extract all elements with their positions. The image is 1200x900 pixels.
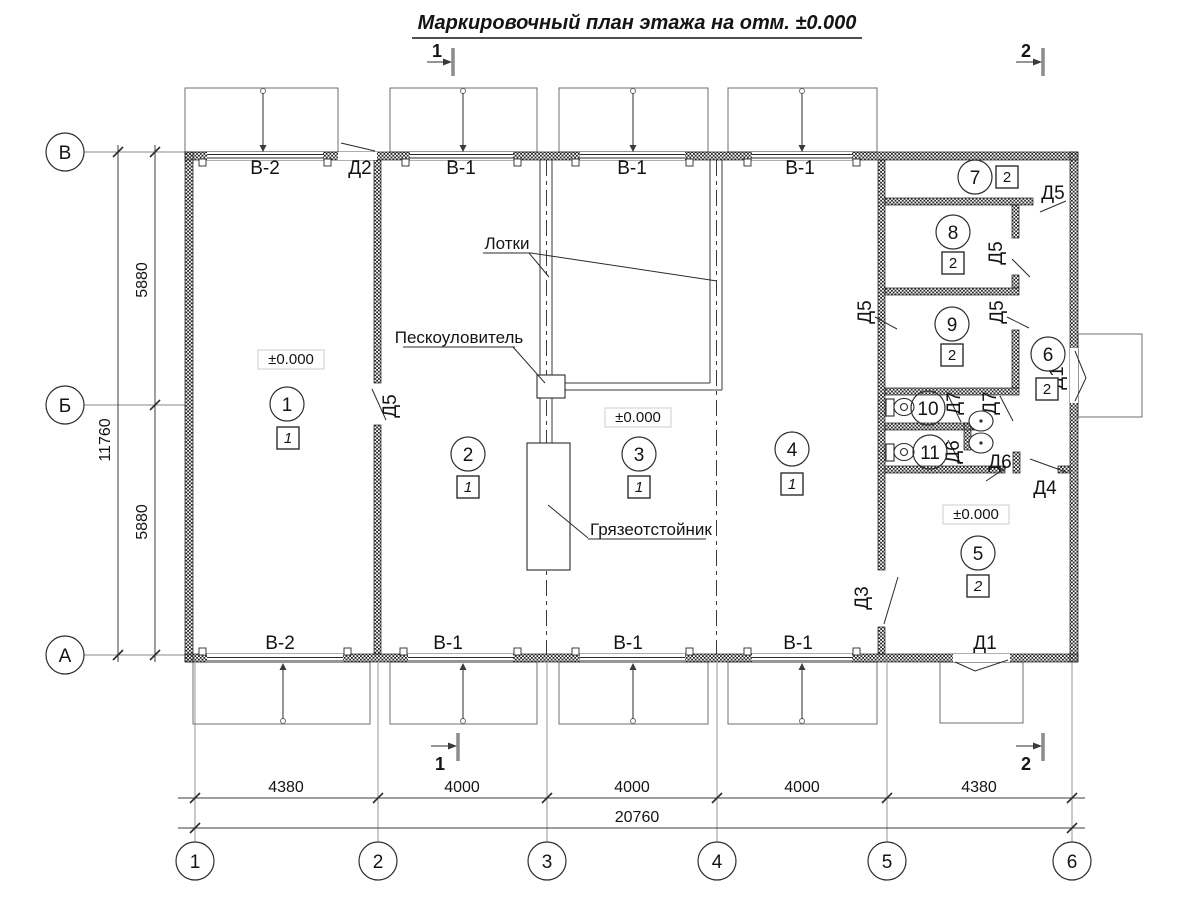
door-label-d7-b: Д7	[980, 391, 1001, 414]
elevation-room3: ±0.000	[615, 409, 661, 426]
section-1-label-top: 1	[432, 41, 442, 61]
plan-canvas: Маркировочный план этажа на отм. ±0.000	[0, 0, 1200, 900]
room-number: 6	[1043, 345, 1054, 366]
toilet-room10	[886, 399, 914, 417]
section-2-label-bottom: 2	[1021, 754, 1031, 774]
floor-plan-drawing: Маркировочный план этажа на отм. ±0.000	[0, 0, 1200, 900]
room-mark: 1	[788, 476, 796, 493]
axis-col-1: 1	[190, 852, 201, 873]
axis-col-3: 3	[542, 852, 553, 873]
door-label-d5-room9-left: Д5	[855, 300, 876, 323]
axis-col-6: 6	[1067, 852, 1078, 873]
room-number: 5	[973, 544, 984, 565]
door-label-d6-b: Д6	[988, 452, 1011, 473]
elevation-room1: ±0.000	[268, 351, 314, 368]
washbasin-lower	[969, 433, 993, 453]
axis-row-v: В	[59, 143, 72, 164]
window-label-v1-bottom-2: В-1	[613, 633, 643, 654]
room-mark: 2	[1043, 381, 1051, 398]
door-label-d7-a: Д7	[944, 391, 965, 414]
door-label-d2: Д2	[348, 158, 371, 179]
window-label-v1-top-1: В-1	[446, 158, 476, 179]
section-2-label-top: 2	[1021, 41, 1031, 61]
dim-left-upper: 5880	[134, 262, 151, 298]
axis-col-2: 2	[373, 852, 384, 873]
room-number: 9	[947, 315, 958, 336]
window-label-v1-top-2: В-1	[617, 158, 647, 179]
room-number: 1	[282, 395, 293, 416]
window-label-v2-bottom: В-2	[265, 633, 295, 654]
room-number: 2	[463, 445, 474, 466]
door-label-d1-bottom: Д1	[973, 633, 996, 654]
door-label-d5-corridor: Д5	[1041, 183, 1064, 204]
page-title: Маркировочный план этажа на отм. ±0.000	[418, 12, 857, 34]
room-mark: 2	[948, 347, 956, 364]
room-number: 7	[970, 168, 981, 189]
sand-trap-label: Пескоуловитель	[395, 328, 524, 347]
window-label-v2-top: В-2	[250, 158, 280, 179]
dim-1-2: 4380	[268, 779, 304, 796]
section-1-label-bottom: 1	[435, 754, 445, 774]
door-label-d5-room8: Д5	[986, 241, 1007, 264]
room-mark: 1	[464, 479, 472, 496]
door-label-d4: Д4	[1033, 478, 1057, 499]
trays-label: Лотки	[485, 234, 530, 253]
axis-row-a: А	[59, 646, 72, 667]
dim-2-3: 4000	[444, 779, 480, 796]
elevation-room5: ±0.000	[953, 506, 999, 523]
room-mark: 2	[973, 578, 983, 595]
axis-row-b: Б	[59, 396, 71, 417]
window-label-v1-top-3: В-1	[785, 158, 815, 179]
door-label-d3: Д3	[852, 586, 873, 609]
dim-4-5: 4000	[784, 779, 820, 796]
door-label-d6-a: Д6	[943, 440, 964, 463]
axis-col-5: 5	[882, 852, 893, 873]
dim-total: 20760	[615, 809, 660, 826]
dim-3-4: 4000	[614, 779, 650, 796]
dim-left-total: 11760	[97, 418, 114, 461]
room-number: 8	[948, 223, 959, 244]
axis-col-4: 4	[712, 852, 723, 873]
mud-trap-label: Грязеотстойник	[590, 520, 712, 539]
window-label-v1-bottom-1: В-1	[433, 633, 463, 654]
door-label-d5-hall: Д5	[380, 394, 401, 417]
room-number: 11	[920, 443, 940, 464]
room-number: 10	[917, 399, 938, 420]
room-number: 3	[634, 445, 645, 466]
dim-left-lower: 5880	[134, 504, 151, 540]
dim-5-6: 4380	[961, 779, 997, 796]
room-mark: 2	[1003, 169, 1011, 186]
room-number: 4	[787, 440, 798, 461]
door-label-d5-room9-right: Д5	[987, 300, 1008, 323]
room-mark: 1	[635, 479, 643, 496]
window-label-v1-bottom-3: В-1	[783, 633, 813, 654]
room-mark: 1	[284, 430, 292, 447]
toilet-room11	[886, 444, 914, 462]
room-mark: 2	[949, 255, 957, 272]
mud-collector-box	[527, 443, 570, 570]
